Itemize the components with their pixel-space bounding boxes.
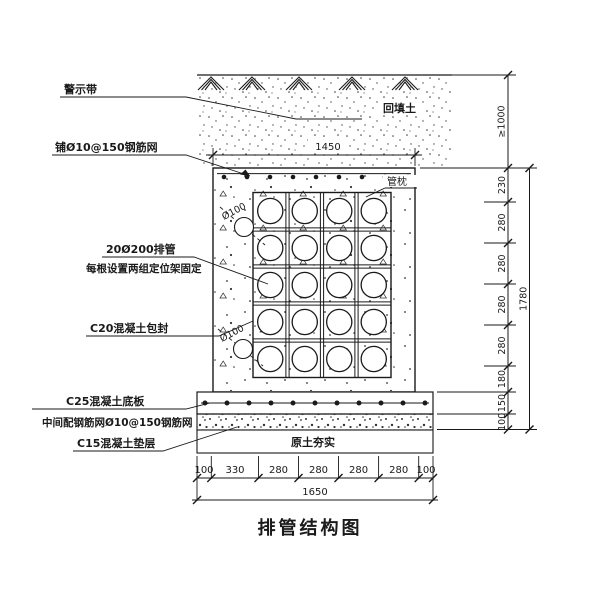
mesh-dot <box>222 175 227 180</box>
pipe-circle <box>292 309 317 334</box>
mesh-dot <box>337 175 342 180</box>
pipe-circle <box>292 272 317 297</box>
drawing-title: 排管结构图 <box>258 517 363 539</box>
dim-bottom-2: 280 <box>269 465 288 476</box>
mesh-dot <box>291 401 296 406</box>
mesh-dot <box>313 401 318 406</box>
encasement-label: C20混凝土包封 <box>90 321 168 335</box>
pipe-dia-circle <box>234 340 253 359</box>
backfill-label: 回填土 <box>383 101 416 115</box>
pipe-circle <box>327 309 352 334</box>
pipe-circle <box>258 235 283 260</box>
mesh-dot <box>357 401 362 406</box>
pipe-circle <box>258 346 283 371</box>
mesh-dot <box>401 401 406 406</box>
pipe-circle <box>292 346 317 371</box>
pipe-circle <box>327 198 352 223</box>
base-layers: 原土夯实 <box>197 392 433 453</box>
pipe-circle <box>258 309 283 334</box>
pipes-label-1: 20Ø200排管 <box>106 242 176 256</box>
dim-right-total: 1780 <box>519 287 530 311</box>
pipe-circle <box>258 272 283 297</box>
structure-drawing: 1450 管枕 Ø100 Ø100 原土夯实 100 <box>0 0 600 600</box>
dim-bottom-4: 280 <box>349 465 368 476</box>
pipes-label-2: 每根设置两组定位架固定 <box>86 262 202 275</box>
mesh-dot <box>335 401 340 406</box>
backfill-texture <box>198 76 451 167</box>
ground-and-backfill <box>197 75 452 167</box>
mesh-dot <box>423 401 428 406</box>
mesh-dot <box>379 401 384 406</box>
cushion-label: C15混凝土垫层 <box>77 436 155 450</box>
pipe-pillow-label: 管枕 <box>387 175 407 188</box>
drawing-page: 1450 管枕 Ø100 Ø100 原土夯实 100 <box>0 0 600 600</box>
pipe-circle <box>292 198 317 223</box>
pipe-circle <box>361 272 386 297</box>
pipe-circle <box>327 235 352 260</box>
dim-bottom-0: 100 <box>194 465 213 476</box>
dim-right-cover: ≥1000 <box>497 105 508 137</box>
pipe-circle <box>361 309 386 334</box>
dim-bottom: 100 330 280 280 280 280 100 1650 <box>192 465 438 500</box>
dim-right-7: 100 <box>497 413 508 431</box>
pipe-circle <box>258 198 283 223</box>
pipe-circle <box>292 235 317 260</box>
base-slab-label: C25混凝土底板 <box>66 394 145 408</box>
dim-bottom-1: 330 <box>225 465 244 476</box>
dim-right: ≥1000 230 280 280 280 280 180 150 100 17… <box>497 75 530 431</box>
dim-top-width-label: 1450 <box>315 142 340 153</box>
mesh-dot <box>247 401 252 406</box>
mid-mesh-label: 中间配钢筋网Ø10@150钢筋网 <box>42 416 192 429</box>
dim-right-5: 180 <box>497 370 508 388</box>
pipe-dia-circle <box>235 218 254 237</box>
mesh-dot <box>269 401 274 406</box>
top-mesh-label: 铺Ø10@150钢筋网 <box>55 140 158 154</box>
mesh-dot <box>360 175 365 180</box>
pipe-circle <box>361 235 386 260</box>
dim-right-0: 230 <box>497 176 508 194</box>
dim-right-3: 280 <box>497 295 508 313</box>
dim-right-4: 280 <box>497 336 508 354</box>
backfill-callout: 回填土 <box>380 101 420 115</box>
dim-right-6: 150 <box>497 394 508 412</box>
pipe-circle <box>361 346 386 371</box>
compacted-soil-label: 原土夯实 <box>291 435 335 449</box>
pipe-circle <box>361 198 386 223</box>
dim-bottom-total: 1650 <box>302 487 327 498</box>
mesh-dot <box>291 175 296 180</box>
dim-right-1: 280 <box>497 213 508 231</box>
cushion-rect <box>197 414 433 430</box>
pipe-circle <box>327 272 352 297</box>
warning-tape-label: 警示带 <box>63 82 97 96</box>
dim-bottom-6: 100 <box>416 465 435 476</box>
mesh-dot <box>314 175 319 180</box>
dim-bottom-3: 280 <box>309 465 328 476</box>
dim-right-2: 280 <box>497 254 508 272</box>
pipe-circle <box>327 346 352 371</box>
mesh-dot <box>268 175 273 180</box>
dim-bottom-5: 280 <box>389 465 408 476</box>
